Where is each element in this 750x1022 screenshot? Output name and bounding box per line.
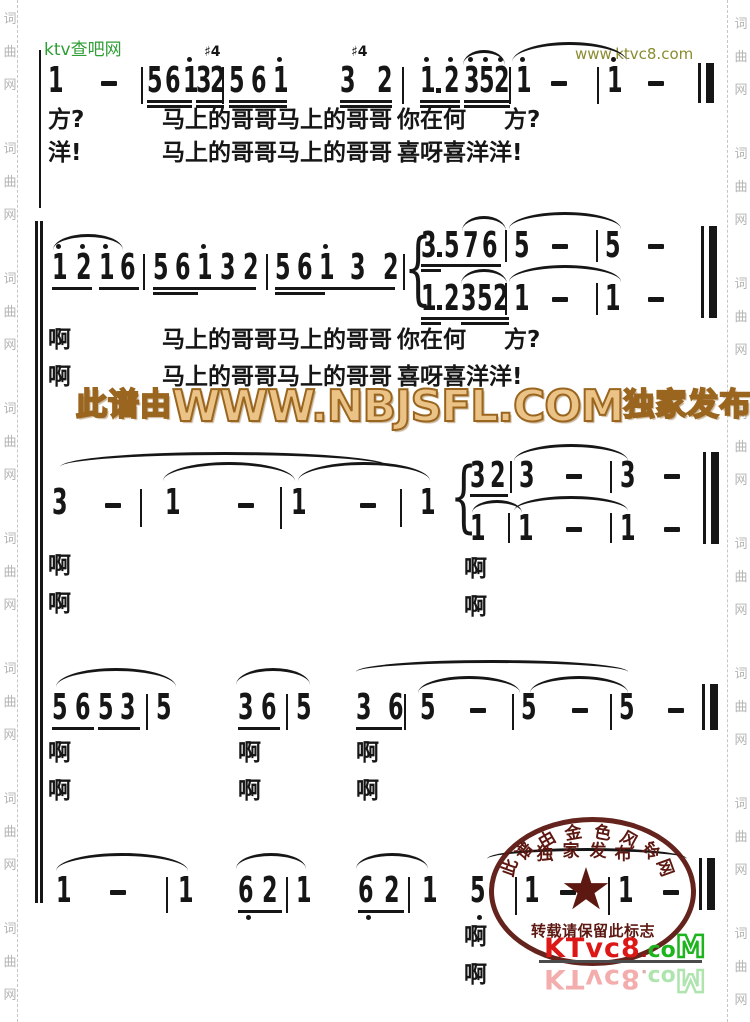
barline [166, 877, 168, 913]
note: 6 [482, 228, 498, 264]
note: 6 [251, 63, 267, 99]
note: 2 [377, 63, 393, 99]
note: 1 [420, 485, 436, 521]
beam-line [464, 100, 510, 103]
beam-line [470, 494, 508, 497]
rest-dash [470, 708, 486, 713]
note: 2 [262, 873, 278, 909]
beam-line [238, 910, 282, 913]
octave-dot [187, 57, 192, 62]
ktvc8-logo-reflection: KTvc8.coM [544, 964, 706, 994]
note: 5 [147, 63, 163, 99]
rest-dash [572, 708, 588, 713]
lyric: 你在何 [397, 108, 466, 132]
rhythm-dot [436, 88, 441, 93]
note: 5 [156, 690, 172, 726]
barline [40, 221, 43, 903]
note: 5 [296, 690, 312, 726]
rest-dash [664, 474, 680, 479]
note: 1 [165, 485, 181, 521]
note: 5 [275, 250, 291, 286]
barline [35, 221, 38, 903]
octave-dot [323, 244, 328, 249]
rest-dash [648, 297, 664, 302]
barline [512, 694, 514, 730]
octave-dot [448, 57, 453, 62]
note: 3 [356, 690, 372, 726]
rest-dash [238, 503, 254, 508]
lyric: 马上的哥哥马上的哥哥 [162, 141, 392, 165]
beam-line [196, 100, 224, 103]
right-side-watermark: 词曲网 [733, 8, 749, 107]
rest-dash [668, 708, 684, 713]
barline [505, 283, 507, 315]
barline [610, 513, 612, 543]
octave-dot [277, 57, 282, 62]
note: 3 [421, 228, 437, 264]
beam-line [356, 727, 402, 730]
lyric: 啊 [464, 595, 487, 619]
lyric: 马上的哥哥马上的哥哥 [162, 328, 392, 352]
ktvc8-logo: KTvc8.coM [544, 933, 706, 963]
lyric: 啊 [464, 557, 487, 581]
barline [286, 877, 288, 913]
rest-dash [566, 474, 582, 479]
center-watermark-prefix: 此谱由 [76, 387, 172, 423]
ktvc8-logo-reflection-m: M [676, 962, 706, 997]
beam-line [153, 292, 198, 295]
beam-line [52, 727, 94, 730]
stamp-star-icon: ★ [560, 860, 612, 918]
lyric: 洋! [48, 141, 82, 165]
note: 1 [319, 250, 335, 286]
barline [146, 694, 148, 730]
note: 6 [261, 690, 277, 726]
sheet-music-page: ktv查吧网 www.ktvc8.com 此谱由WWW.NBJSFL.COM独家… [0, 0, 750, 1022]
note: 1 [422, 873, 438, 909]
note: 3 [620, 458, 636, 494]
barline [596, 283, 598, 315]
octave-dot [498, 57, 503, 62]
note: 6 [120, 250, 136, 286]
barline [143, 254, 145, 290]
barline [596, 230, 598, 262]
center-watermark: 此谱由WWW.NBJSFL.COM独家发布 [76, 379, 750, 432]
slur-arc [356, 853, 428, 869]
lyric: 啊 [48, 365, 71, 389]
final-barline [699, 858, 715, 910]
note: 1 [291, 485, 307, 521]
stamp-line1-char: 发 [590, 837, 607, 862]
barline [286, 694, 288, 730]
rest-dash [551, 81, 567, 86]
rest-dash [360, 503, 376, 508]
octave-dot [520, 57, 525, 62]
note: 5 [521, 690, 537, 726]
octave-dot [424, 57, 429, 62]
note: 5 [514, 228, 530, 264]
note: 5 [153, 250, 169, 286]
barline [505, 230, 507, 262]
final-barline [698, 63, 714, 103]
rhythm-dot [437, 252, 442, 257]
right-side-watermark: 词曲网 [733, 658, 749, 757]
ktvc8-logo-reflection-red: KTvc8 [544, 963, 641, 994]
stamp-line1-char: 布 [615, 840, 632, 865]
barline [597, 67, 599, 104]
note: 5 [98, 690, 114, 726]
rest-dash [648, 244, 664, 249]
note: 6 [75, 690, 91, 726]
beam-line [358, 910, 404, 913]
lyric: 马上的哥哥马上的哥哥 [162, 108, 392, 132]
beam-line [421, 264, 463, 267]
note: 5 [444, 228, 460, 264]
note: 2 [444, 63, 460, 99]
lyric: 啊 [464, 963, 487, 987]
note: 1 [197, 250, 213, 286]
slur-arc [530, 676, 628, 693]
final-barline [702, 684, 718, 730]
note: 2 [383, 250, 399, 286]
beam-line [421, 269, 441, 272]
note: 1 [420, 63, 436, 99]
right-side-watermark: 词曲网 [733, 268, 749, 367]
note: 5 [605, 228, 621, 264]
lyric: 啊 [48, 554, 71, 578]
beam-line [229, 100, 287, 103]
barline [140, 489, 142, 527]
beam-line [421, 322, 441, 325]
beam-line [421, 317, 463, 320]
center-watermark-site: WWW.NBJSFL.COM [172, 381, 623, 432]
note: 2 [384, 873, 400, 909]
note: 1 [52, 250, 68, 286]
octave-dot [103, 244, 108, 249]
octave-dot-low [246, 915, 251, 920]
ktvc8-logo-reflection-dot: . [641, 965, 648, 986]
note: 6 [238, 873, 254, 909]
center-watermark-suffix: 独家发布 [623, 387, 750, 423]
octave-dot-low [477, 915, 482, 920]
barline [408, 877, 410, 913]
barline [508, 513, 510, 543]
beam-line [52, 287, 92, 290]
lyric: 方? [504, 108, 540, 132]
beam-line [275, 287, 395, 290]
note: 2 [243, 250, 259, 286]
left-side-watermark: 词曲网 [2, 783, 18, 882]
lyric: 方? [504, 328, 540, 352]
octave-dot [468, 57, 473, 62]
beam-line [461, 317, 509, 320]
note: 5 [479, 63, 495, 99]
lyric: 啊 [48, 328, 71, 352]
note: 3 [519, 458, 535, 494]
beam-line [238, 727, 280, 730]
note: 5 [420, 690, 436, 726]
barline [610, 461, 612, 493]
slur-arc [236, 853, 306, 869]
ktvc8-logo-dot: . [641, 941, 648, 962]
barline [39, 50, 41, 208]
beam-line [99, 287, 139, 290]
note: 3 [238, 690, 254, 726]
slur-arc [236, 668, 310, 685]
octave-dot [483, 57, 488, 62]
note: 3 [340, 63, 356, 99]
grace-ornament: ♯4 [351, 44, 368, 60]
note: 1 [99, 250, 115, 286]
note: 3 [350, 250, 366, 286]
note: 5 [477, 281, 493, 317]
barline [222, 67, 224, 104]
right-side-watermark: 词曲网 [733, 788, 749, 887]
lyric: 啊 [356, 779, 379, 803]
octave-dot-low [366, 915, 371, 920]
note: 1 [605, 281, 621, 317]
site-watermark-top-left: ktv查吧网 [44, 35, 122, 60]
lyric: 啊 [48, 741, 71, 765]
rest-dash [552, 297, 568, 302]
slur-arc [56, 668, 176, 687]
left-side-watermark: 词曲网 [2, 133, 18, 232]
barline [610, 694, 612, 730]
note: 6 [175, 250, 191, 286]
note: 1 [607, 63, 623, 99]
rest-dash [110, 890, 126, 895]
left-side-watermark: 词曲网 [2, 263, 18, 362]
note: 3 [461, 281, 477, 317]
barline [509, 67, 511, 104]
barline [510, 461, 512, 493]
lyric: 啊 [238, 779, 261, 803]
note: 1 [421, 281, 437, 317]
left-side-watermark: 词曲网 [2, 393, 18, 492]
lyric: 啊 [238, 741, 261, 765]
note: 1 [470, 511, 486, 547]
beam-line [153, 287, 256, 290]
grace-ornament: ♯4 [204, 44, 221, 60]
beam-line [98, 727, 140, 730]
note: 1 [518, 511, 534, 547]
note: 5 [229, 63, 245, 99]
beam-line [461, 322, 509, 325]
note: 2 [444, 281, 460, 317]
octave-dot [611, 57, 616, 62]
note: 7 [463, 228, 479, 264]
note: 6 [165, 63, 181, 99]
beam-line [340, 100, 392, 103]
note: 2 [490, 458, 506, 494]
note: 3 [464, 63, 480, 99]
slur-arc [56, 853, 188, 871]
right-dashed-rule [727, 0, 728, 1022]
barline [141, 67, 143, 104]
rest-dash [664, 527, 680, 532]
ktvc8-logo-reflection-green: co [648, 964, 676, 989]
right-side-watermark: 词曲网 [733, 528, 749, 627]
lyric: 喜呀喜洋洋! [397, 141, 523, 165]
final-barline [701, 226, 717, 318]
right-side-watermark: 词曲网 [733, 918, 749, 1017]
note: 1 [56, 873, 72, 909]
note: 3 [120, 690, 136, 726]
note: 1 [48, 63, 64, 99]
left-side-watermark: 词曲网 [2, 3, 18, 102]
note: 5 [470, 873, 486, 909]
note: 1 [620, 511, 636, 547]
note: 3 [470, 458, 486, 494]
lyric: 啊 [464, 925, 487, 949]
rest-dash [566, 527, 582, 532]
barline [280, 487, 282, 529]
barline [402, 67, 404, 104]
left-side-watermark: 词曲网 [2, 653, 18, 752]
barline [404, 694, 406, 730]
note: 5 [52, 690, 68, 726]
note: 6 [388, 690, 404, 726]
note: 1 [516, 63, 532, 99]
rest-dash [552, 244, 568, 249]
stamp-line1-char: 家 [563, 837, 580, 862]
octave-dot [80, 244, 85, 249]
final-barline [703, 452, 719, 544]
rest-dash [105, 503, 121, 508]
barline [266, 254, 268, 290]
note: 5 [619, 690, 635, 726]
octave-dot [56, 244, 61, 249]
lyric: 啊 [356, 741, 379, 765]
note: 6 [358, 873, 374, 909]
note: 6 [297, 250, 313, 286]
lyric: 啊 [48, 779, 71, 803]
lyric: 方? [48, 108, 84, 132]
slur-arc [356, 660, 628, 672]
note: 3 [220, 250, 236, 286]
note: 2 [494, 63, 510, 99]
beam-line [275, 292, 325, 295]
stamp-line1-char: 独 [537, 840, 554, 865]
note: 3 [52, 485, 68, 521]
lyric: 啊 [48, 592, 71, 616]
rest-dash [101, 81, 117, 86]
note: 2 [76, 250, 92, 286]
left-side-watermark: 词曲网 [2, 913, 18, 1012]
note: 1 [514, 281, 530, 317]
beam-line [420, 100, 460, 103]
note: 1 [296, 873, 312, 909]
right-side-watermark: 词曲网 [733, 138, 749, 237]
lyric: 你在何 [397, 328, 466, 352]
beam-line [463, 264, 501, 267]
note: 1 [273, 63, 289, 99]
octave-dot [201, 244, 206, 249]
beam-line [147, 100, 192, 103]
barline [400, 489, 402, 527]
note: 1 [178, 873, 194, 909]
rest-dash [648, 81, 664, 86]
rhythm-dot [437, 305, 442, 310]
left-side-watermark: 词曲网 [2, 523, 18, 622]
